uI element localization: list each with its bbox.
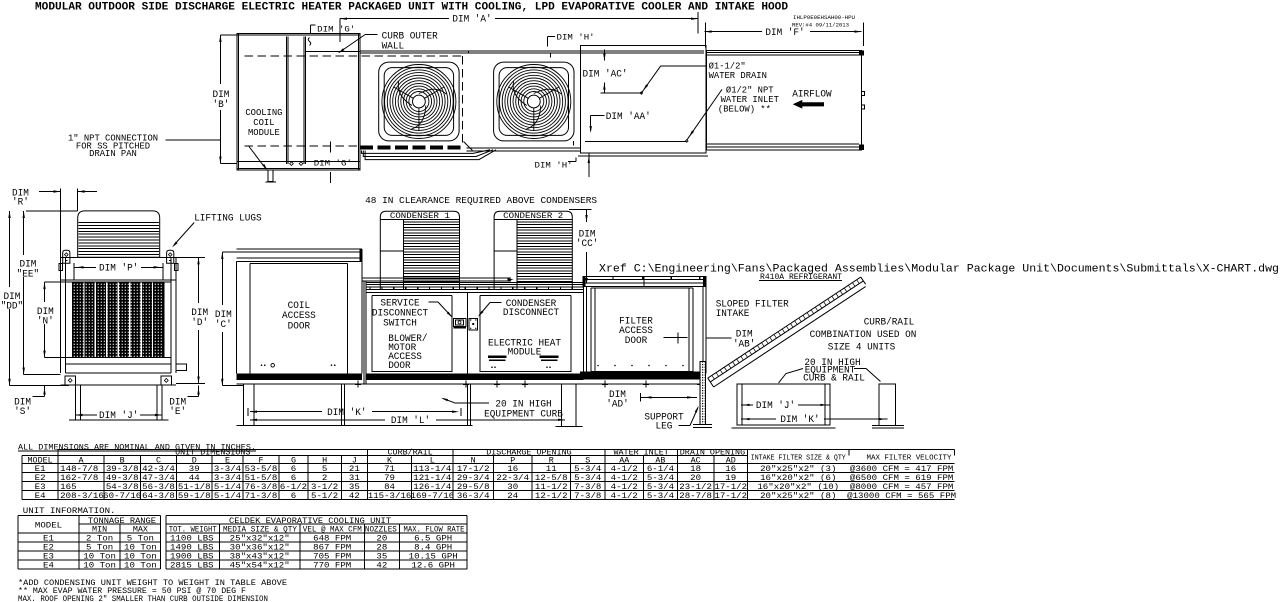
svg-text:DIM 'AC': DIM 'AC' bbox=[583, 68, 628, 80]
svg-text:MODULE: MODULE bbox=[248, 127, 280, 138]
svg-text:'AB': 'AB' bbox=[733, 338, 756, 350]
svg-text:DIM 'J': DIM 'J' bbox=[99, 410, 138, 422]
svg-text:36-3/4: 36-3/4 bbox=[457, 491, 490, 501]
svg-text:DISCHARGE OPENING: DISCHARGE OPENING bbox=[486, 448, 571, 458]
svg-text:DIM 'K': DIM 'K' bbox=[780, 414, 819, 426]
svg-text:AIRFLOW: AIRFLOW bbox=[792, 90, 832, 101]
svg-text:'E': 'E' bbox=[169, 406, 186, 418]
svg-text:DOOR: DOOR bbox=[625, 336, 648, 347]
svg-text:42: 42 bbox=[349, 491, 360, 501]
svg-text:LIFTING LUGS: LIFTING LUGS bbox=[194, 214, 261, 225]
svg-text:115-3/16: 115-3/16 bbox=[368, 491, 412, 501]
svg-text:12.6 GPH: 12.6 GPH bbox=[411, 561, 455, 571]
svg-text:"EE": "EE" bbox=[17, 268, 40, 280]
svg-text:60-7/16: 60-7/16 bbox=[103, 491, 141, 501]
svg-text:MAX FILTER VELOCITY: MAX FILTER VELOCITY bbox=[867, 455, 953, 463]
svg-text:71-3/8: 71-3/8 bbox=[245, 491, 278, 501]
svg-text:5-3/4: 5-3/4 bbox=[647, 491, 674, 501]
svg-text:DIM 'G': DIM 'G' bbox=[314, 158, 352, 168]
svg-text:DIM 'H': DIM 'H' bbox=[535, 161, 573, 171]
svg-text:5-1/2: 5-1/2 bbox=[311, 491, 338, 501]
svg-text:(BELOW) **: (BELOW) ** bbox=[718, 103, 771, 114]
svg-text:'R': 'R' bbox=[12, 197, 29, 209]
svg-text:CURB/RAIL: CURB/RAIL bbox=[388, 448, 433, 458]
svg-text:6: 6 bbox=[291, 491, 297, 501]
svg-text:UNIT INFORMATION.: UNIT INFORMATION. bbox=[23, 506, 116, 516]
svg-text:DOOR: DOOR bbox=[288, 321, 311, 332]
svg-text:4-1/2: 4-1/2 bbox=[611, 491, 638, 501]
svg-text:DIM 'H': DIM 'H' bbox=[557, 33, 595, 43]
svg-text:SIZE 4 UNITS: SIZE 4 UNITS bbox=[828, 343, 895, 354]
svg-text:MODULAR OUTDOOR SIDE DISCHARGE: MODULAR OUTDOOR SIDE DISCHARGE ELECTRIC … bbox=[35, 2, 788, 14]
svg-text:CONDENSER 2: CONDENSER 2 bbox=[503, 212, 563, 221]
svg-text:770 FPM: 770 FPM bbox=[313, 561, 351, 571]
svg-text:59-1/8: 59-1/8 bbox=[178, 491, 211, 501]
svg-text:COMBINATION USED ON: COMBINATION USED ON bbox=[810, 330, 917, 341]
svg-text:10 Ton: 10 Ton bbox=[83, 561, 116, 571]
svg-text:24: 24 bbox=[507, 491, 518, 501]
svg-text:DIM 'AA': DIM 'AA' bbox=[606, 111, 651, 123]
svg-text:IHLP0E0EHSAH00-HPU: IHLP0E0EHSAH00-HPU bbox=[793, 15, 855, 21]
svg-text:DRAIN PAN: DRAIN PAN bbox=[89, 148, 137, 159]
svg-text:DIM 'J': DIM 'J' bbox=[756, 400, 795, 412]
svg-text:SWITCH: SWITCH bbox=[383, 319, 417, 330]
svg-text:12-1/2: 12-1/2 bbox=[535, 491, 568, 501]
svg-text:48 IN CLEARANCE REQUIRED ABOVE: 48 IN CLEARANCE REQUIRED ABOVE CONDENSER… bbox=[365, 195, 597, 206]
svg-text:MAX. ROOF OPENING 2" SMALLER T: MAX. ROOF OPENING 2" SMALLER THAN CURB O… bbox=[18, 594, 268, 602]
svg-text:E4: E4 bbox=[35, 491, 46, 501]
svg-text:208-3/16: 208-3/16 bbox=[60, 491, 104, 501]
svg-text:DIM 'P': DIM 'P' bbox=[99, 262, 138, 274]
svg-text:DOOR: DOOR bbox=[388, 361, 411, 372]
svg-text:DIM 'L': DIM 'L' bbox=[391, 415, 430, 427]
svg-text:5-1/4: 5-1/4 bbox=[214, 491, 241, 501]
svg-text:EQUIPMENT CURB: EQUIPMENT CURB bbox=[484, 410, 563, 421]
svg-text:'S': 'S' bbox=[14, 406, 31, 418]
svg-text:E4: E4 bbox=[43, 561, 54, 571]
svg-text:UNIT DIMENSIONS: UNIT DIMENSIONS bbox=[175, 448, 250, 458]
svg-text:WATER DRAIN: WATER DRAIN bbox=[709, 70, 767, 81]
svg-text:'D': 'D' bbox=[191, 317, 208, 329]
svg-text:'CC': 'CC' bbox=[576, 238, 599, 250]
svg-text:INTAKE: INTAKE bbox=[716, 309, 750, 320]
svg-text:64-3/8: 64-3/8 bbox=[142, 491, 175, 501]
svg-text:CONDENSER 1: CONDENSER 1 bbox=[390, 212, 450, 221]
svg-text:MODEL: MODEL bbox=[35, 521, 62, 531]
svg-text:@13000 CFM = 565 FPM: @13000 CFM = 565 FPM bbox=[847, 491, 956, 501]
svg-text:28-7/8: 28-7/8 bbox=[679, 491, 712, 501]
svg-text:169-7/16: 169-7/16 bbox=[411, 491, 455, 501]
svg-text:MODULE: MODULE bbox=[508, 348, 542, 359]
svg-text:Xref C:\Engineering\Fans\Packa: Xref C:\Engineering\Fans\Packaged Assemb… bbox=[599, 264, 1279, 276]
svg-text:CURB/RAIL: CURB/RAIL bbox=[864, 317, 915, 329]
svg-text:2815 LBS: 2815 LBS bbox=[170, 561, 214, 571]
svg-text:45"x54"x12": 45"x54"x12" bbox=[230, 561, 290, 571]
svg-text:7-3/8: 7-3/8 bbox=[574, 491, 601, 501]
svg-text:NOZZLES: NOZZLES bbox=[365, 527, 397, 535]
svg-text:DIM 'K': DIM 'K' bbox=[327, 407, 366, 419]
svg-text:CURB & RAIL: CURB & RAIL bbox=[803, 374, 865, 385]
svg-text:DIM 'G': DIM 'G' bbox=[317, 25, 355, 35]
svg-text:20"x25"x2" (8): 20"x25"x2" (8) bbox=[760, 491, 836, 501]
svg-text:10 Ton: 10 Ton bbox=[124, 561, 157, 571]
svg-text:"DD": "DD" bbox=[1, 301, 24, 313]
svg-text:17-1/2: 17-1/2 bbox=[714, 491, 747, 501]
svg-text:CELDEK EVAPORATIVE COOLING UNI: CELDEK EVAPORATIVE COOLING UNIT bbox=[229, 516, 391, 526]
svg-text:WALL: WALL bbox=[382, 42, 405, 53]
svg-text:'B': 'B' bbox=[213, 99, 230, 111]
svg-text:DISCONNECT: DISCONNECT bbox=[503, 308, 559, 319]
svg-text:'C': 'C' bbox=[215, 319, 232, 331]
svg-text:DIM 'F': DIM 'F' bbox=[765, 27, 804, 39]
svg-text:LEG: LEG bbox=[656, 422, 673, 433]
svg-text:42: 42 bbox=[376, 561, 387, 571]
svg-text:'N': 'N' bbox=[37, 316, 54, 328]
svg-text:DIM 'A': DIM 'A' bbox=[452, 14, 491, 26]
svg-text:INTAKE FILTER SIZE & QTY: INTAKE FILTER SIZE & QTY bbox=[751, 455, 847, 463]
svg-text:'AD': 'AD' bbox=[606, 398, 629, 410]
